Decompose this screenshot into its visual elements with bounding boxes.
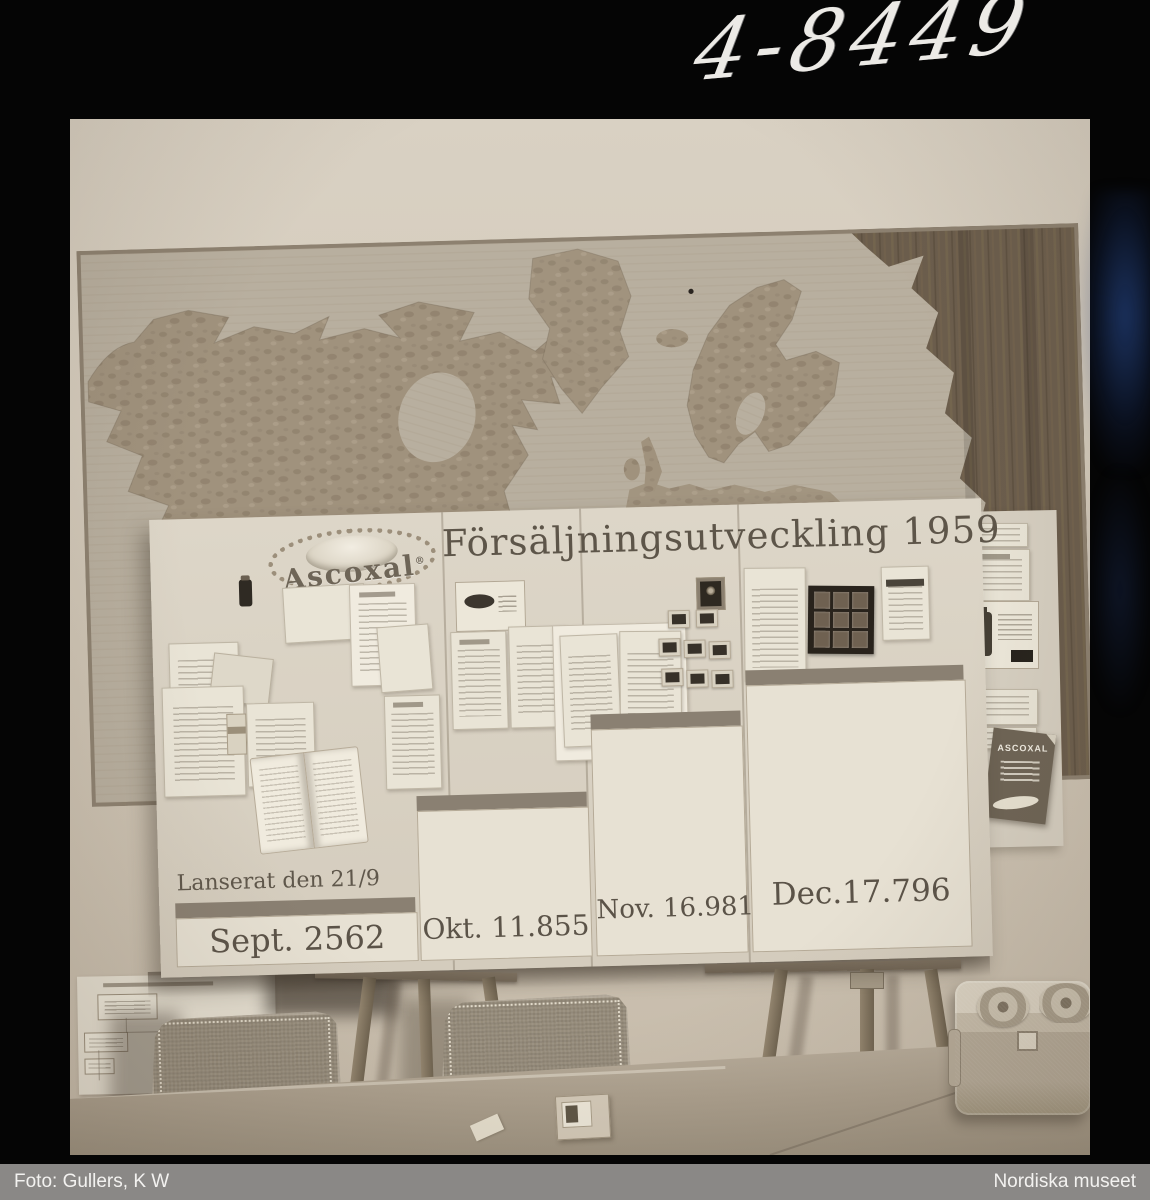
pinned-carton bbox=[226, 713, 247, 755]
mounted-slide bbox=[709, 641, 731, 660]
mounted-slide bbox=[711, 670, 733, 689]
easel-hinge bbox=[850, 972, 884, 989]
document-banner bbox=[886, 578, 925, 587]
month-sales: 17.796 bbox=[842, 872, 951, 911]
column-panel-october: Okt. 11.855 bbox=[417, 807, 593, 961]
pinned-document bbox=[881, 566, 931, 641]
month-value-november: Nov. 16.981 bbox=[596, 891, 747, 925]
archive-credit: Nordiska museet bbox=[993, 1164, 1136, 1200]
mounted-slide bbox=[668, 610, 690, 629]
slide-frame bbox=[814, 631, 830, 648]
film-glare bbox=[1080, 190, 1150, 470]
mounted-slide bbox=[683, 639, 705, 658]
slide-frame bbox=[852, 631, 868, 648]
column-panel-december: Dec.17.796 bbox=[746, 680, 973, 953]
case-handle bbox=[948, 1029, 961, 1087]
trademark-symbol: ® bbox=[414, 555, 427, 567]
archival-photo-card: 4-8449 bbox=[0, 0, 1150, 1200]
slide-frame bbox=[833, 592, 849, 609]
booklet-page bbox=[303, 746, 369, 849]
photographer-credit: Foto: Gullers, K W bbox=[14, 1164, 169, 1200]
slide-sheet bbox=[808, 586, 875, 655]
slide-frame bbox=[833, 611, 849, 628]
pamphlet-title: ASCOXAL bbox=[991, 743, 1054, 754]
pinned-brochure bbox=[384, 694, 442, 789]
month-value-december: Dec.17.796 bbox=[752, 872, 971, 914]
open-booklet bbox=[249, 746, 369, 853]
small-box bbox=[555, 1094, 611, 1141]
photo-print: ASCOXAL bbox=[70, 119, 1090, 1155]
month-name: Sept. bbox=[209, 920, 294, 960]
mounted-slide bbox=[661, 668, 683, 687]
month-name: Nov. bbox=[596, 894, 655, 926]
slide-frame bbox=[814, 592, 830, 609]
box-label bbox=[561, 1101, 592, 1129]
case-latch bbox=[1017, 1031, 1038, 1051]
tape-reel bbox=[977, 987, 1029, 1027]
month-sales: 16.981 bbox=[663, 891, 755, 923]
pamphlet-text-lines bbox=[1000, 761, 1039, 784]
mounted-slide bbox=[696, 609, 718, 628]
pinned-paper bbox=[376, 623, 433, 693]
pinned-brochure bbox=[450, 631, 509, 730]
slide-frame bbox=[852, 612, 868, 629]
mounted-slide bbox=[696, 577, 726, 611]
price-tag bbox=[1011, 650, 1033, 662]
tape-reel bbox=[1039, 983, 1090, 1023]
column-panel-november: Nov. 16.981 bbox=[591, 726, 749, 957]
month-value-september: Sept. 2562 bbox=[177, 917, 418, 961]
typed-document bbox=[744, 567, 807, 682]
pamphlet-product-image bbox=[992, 794, 1039, 812]
month-name: Dec. bbox=[771, 875, 842, 913]
handwritten-reference-number: 4-8449 bbox=[686, 0, 1133, 101]
ascoxal-pamphlet: ASCOXAL bbox=[983, 727, 1056, 824]
launch-note: Lanserat den 21/9 bbox=[176, 865, 417, 896]
board-title: Försäljningsutveckling 1959 bbox=[441, 509, 954, 565]
advert-text-lines bbox=[998, 614, 1032, 640]
reel-tape-recorder bbox=[955, 981, 1090, 1115]
pinned-advert bbox=[455, 580, 526, 632]
caption-bar: Foto: Gullers, K W Nordiska museet bbox=[0, 1164, 1150, 1200]
sales-display-board: Ascoxal® Försäljningsutveckling 1959 bbox=[149, 498, 993, 978]
film-glare bbox=[1090, 470, 1150, 710]
slide-frame bbox=[814, 611, 830, 628]
month-name: Okt. bbox=[422, 911, 483, 946]
month-sales: 2562 bbox=[303, 918, 385, 958]
slide-frame bbox=[852, 592, 868, 609]
mounted-slide bbox=[686, 669, 708, 688]
label-panel-september: Sept. 2562 bbox=[176, 912, 419, 967]
slide-frame bbox=[833, 631, 849, 648]
pinned-vial bbox=[239, 579, 253, 606]
month-sales: 11.855 bbox=[491, 909, 590, 945]
mounted-slide bbox=[658, 638, 680, 657]
month-value-october: Okt. 11.855 bbox=[421, 909, 592, 946]
